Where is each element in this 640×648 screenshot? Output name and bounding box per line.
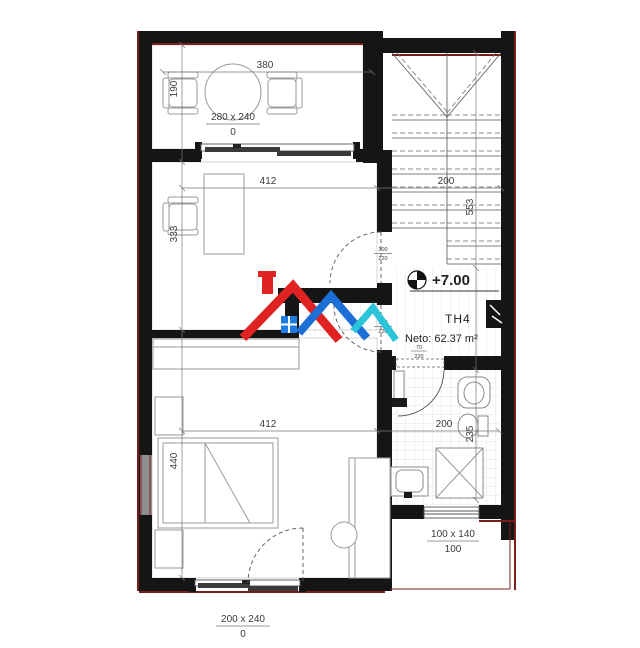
door-swing-arc (330, 232, 381, 283)
dim-stair-length: 553 (465, 198, 476, 215)
door-width: 70 (416, 345, 422, 351)
bedroom-stool (331, 522, 357, 548)
level-label: +7.00 (432, 272, 470, 289)
bedroom-door-sill: 0 (240, 629, 246, 640)
terrace-sliding-door (195, 142, 360, 159)
study-desk (204, 174, 244, 254)
dim-study-depth: 333 (169, 225, 180, 242)
wall-bath-bottom-right (479, 505, 515, 519)
stair-treads-left (392, 120, 447, 228)
dim-bath-width: 200 (436, 419, 453, 430)
door-width: 100 (378, 247, 387, 253)
shaft (486, 300, 507, 328)
dim-bedroom-depth: 440 (169, 452, 180, 469)
logo-window (281, 316, 297, 333)
dim-study-width: 412 (260, 176, 277, 187)
floor-plan: 380 190 412 333 412 440 200 553 200 235 … (0, 0, 640, 648)
window-sash (248, 586, 298, 591)
dim-bedroom-width: 412 (260, 419, 277, 430)
wall-bedroom-bottom-left (139, 578, 195, 591)
bidet (458, 377, 490, 408)
stair-treads-right (447, 120, 501, 264)
bed (158, 438, 278, 528)
study-door (330, 232, 381, 283)
wall-top-stairs (378, 38, 516, 53)
dim-bath-depth: 235 (465, 425, 476, 442)
stair-winder-dashes (397, 53, 496, 114)
bath-window (424, 507, 479, 518)
stair-tread-dashes-left (392, 115, 447, 223)
logo-chimney (262, 276, 273, 294)
nightstand-top (155, 397, 183, 435)
door-height: 220 (378, 256, 387, 262)
door-leaf (396, 359, 444, 367)
window-dim-mark (242, 580, 250, 584)
terrace-door-sill: 0 (230, 127, 236, 138)
level-marker (408, 271, 426, 289)
bedroom-wardrobe (153, 339, 299, 369)
wall-bedroom-bottom-right (305, 578, 385, 591)
window-frame (424, 507, 479, 518)
window-sash (205, 147, 280, 152)
unit-label: TH4 (445, 312, 471, 326)
bedroom-desk (349, 458, 390, 578)
bedroom-door-size: 200 x 240 (221, 614, 265, 625)
terrace-chair-right (267, 72, 302, 114)
wall-terrace-stairs (363, 31, 383, 163)
wall-top-terrace (139, 31, 380, 43)
wall-bath-top-right (444, 356, 516, 370)
nightstand-bottom (155, 530, 183, 568)
window-sash (277, 151, 351, 156)
bath-window-size: 100 x 140 (431, 529, 475, 540)
wall-stub-between-doors (377, 283, 392, 305)
wall-right (501, 31, 514, 540)
bedroom-balcony-door (248, 528, 303, 583)
terrace-door-size: 280 x 240 (211, 112, 255, 123)
dim-terrace-depth: 190 (169, 80, 180, 97)
door-swing-arc (248, 528, 303, 583)
floor-plan-page: 380 190 412 333 412 440 200 553 200 235 … (0, 0, 640, 648)
logo-chimney-cap (258, 271, 276, 277)
bath-window-sill: 100 (445, 544, 462, 555)
wall-study-bedroom (139, 330, 299, 338)
wall-bath-top-left (377, 356, 396, 370)
stair-tread-dashes-right (447, 115, 501, 259)
wall-under-window-right (356, 149, 383, 162)
dim-terrace-width: 380 (257, 60, 274, 71)
door-height: 220 (414, 354, 423, 360)
washbasin (391, 467, 428, 498)
area-label: Neto: 62.37 m² (405, 333, 478, 345)
bedroom-sliding-door (189, 578, 306, 592)
dim-stair-width: 200 (438, 176, 455, 187)
window-dim-mark (233, 144, 241, 148)
stair-winder-lines (392, 53, 501, 117)
wall-study-stairs (377, 150, 392, 232)
staircase (392, 53, 501, 264)
wall-under-window-left (139, 149, 201, 162)
